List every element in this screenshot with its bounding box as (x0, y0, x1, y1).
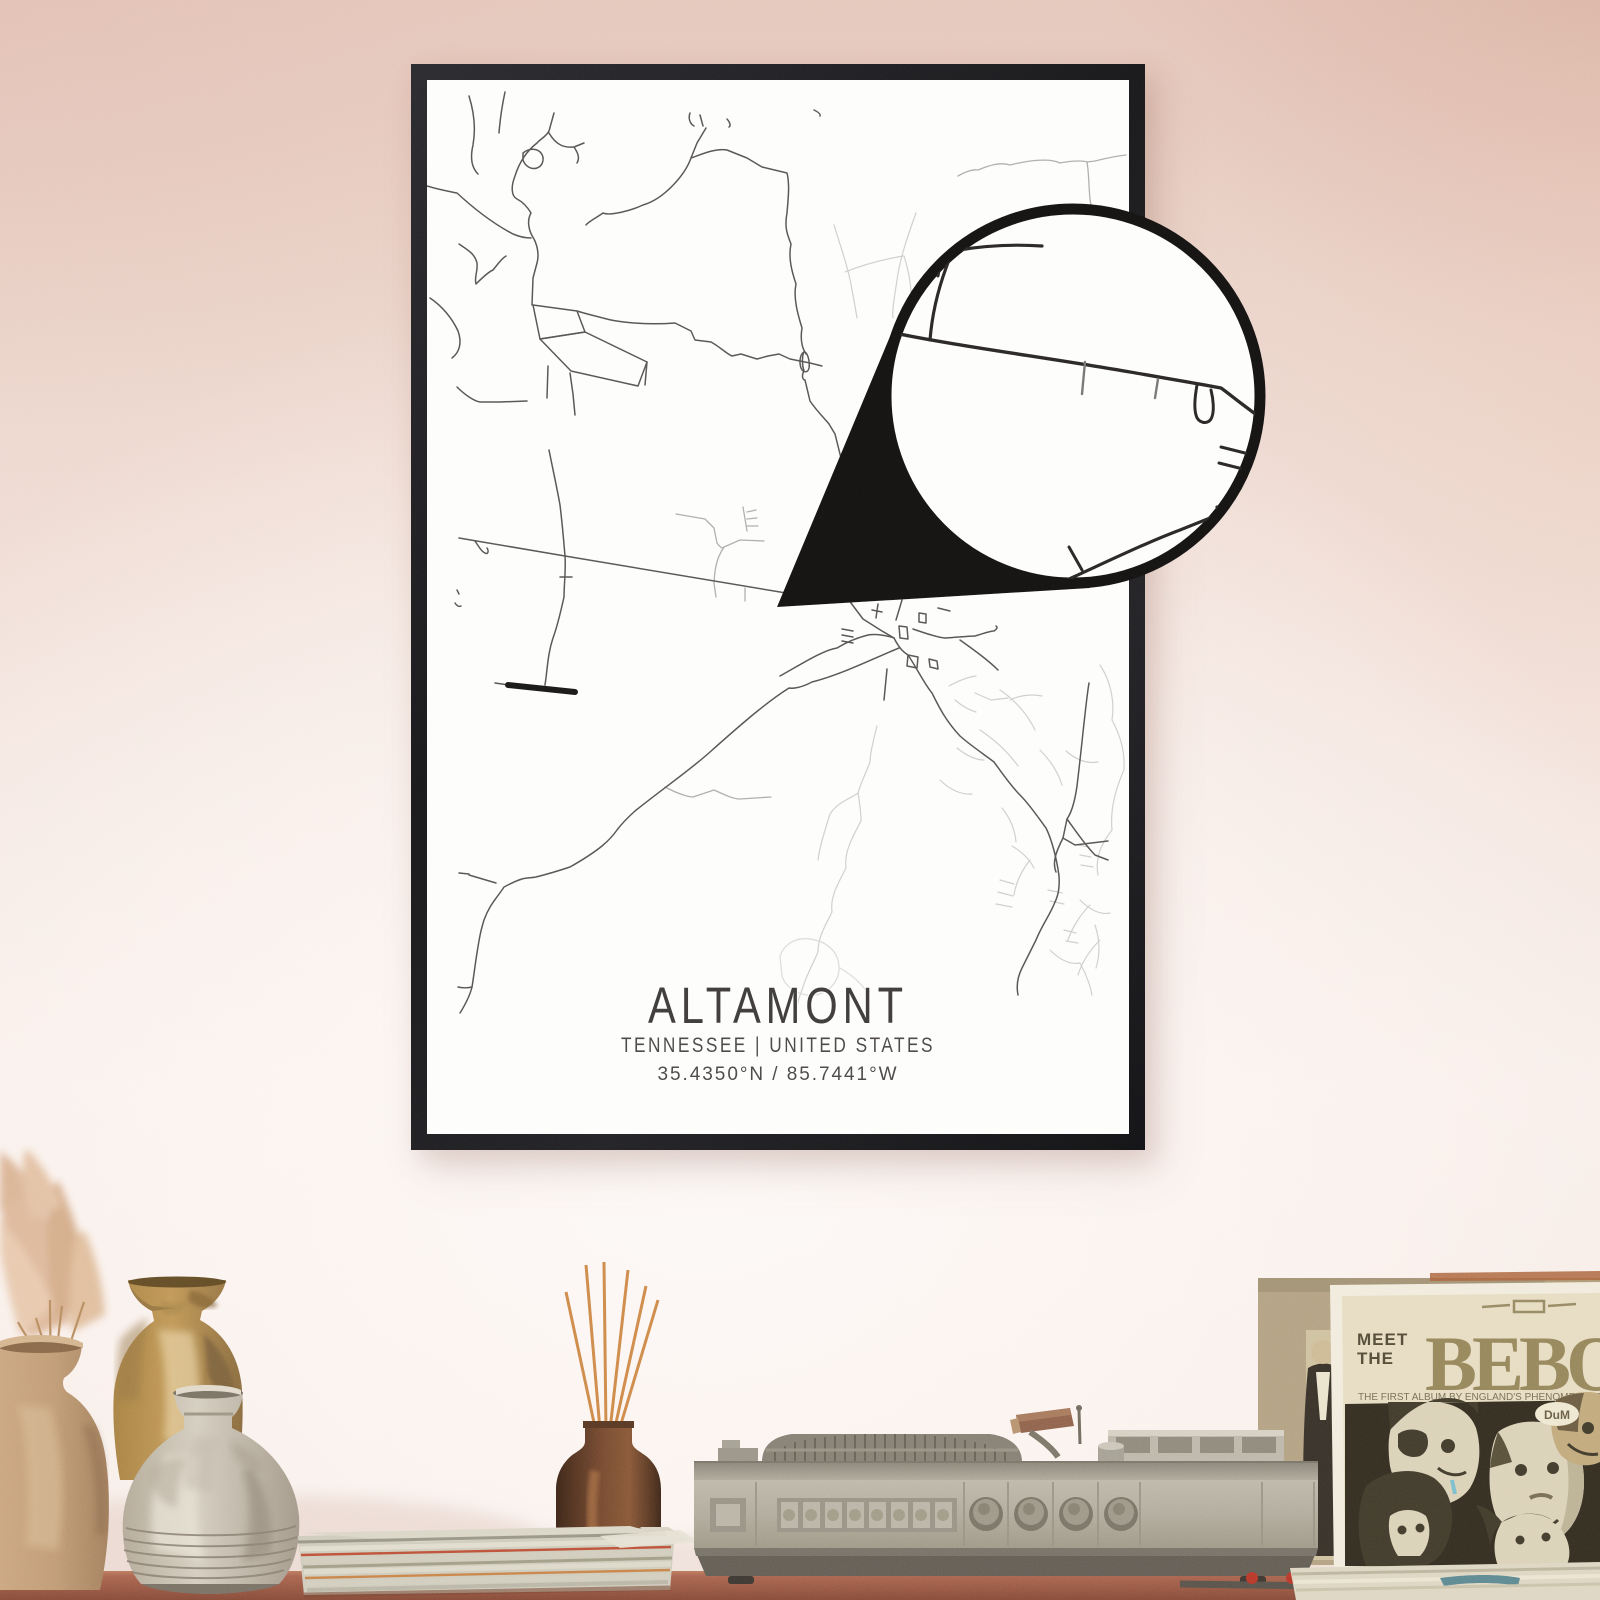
svg-text:MEET: MEET (1357, 1330, 1408, 1349)
svg-text:THE: THE (1357, 1349, 1394, 1368)
svg-text:DuM: DuM (1544, 1408, 1570, 1422)
